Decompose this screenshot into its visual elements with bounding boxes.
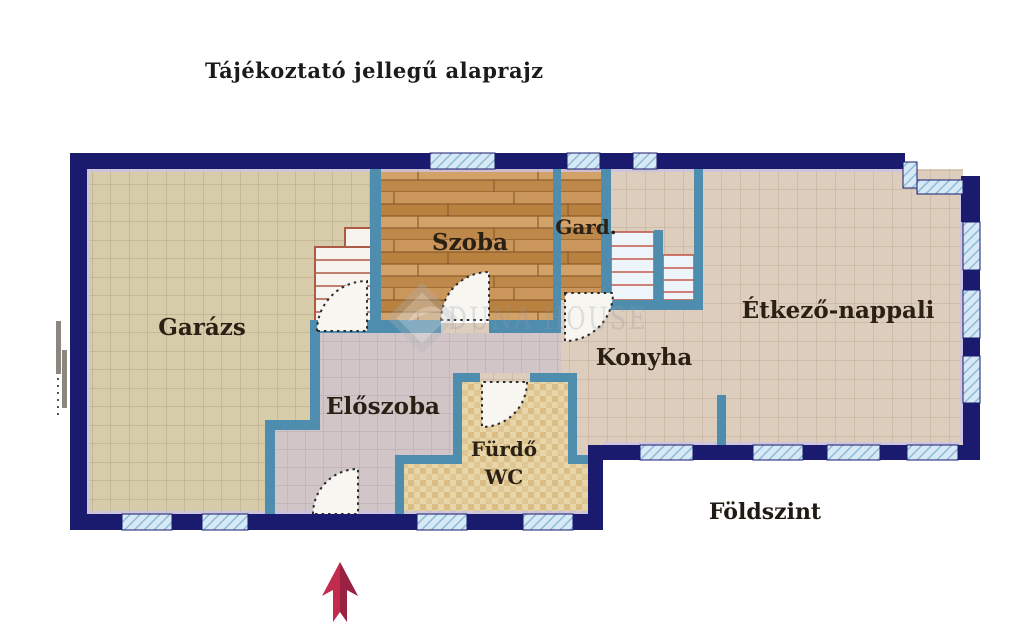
window-right-2 [963, 290, 980, 338]
wall-bottom-l1 [70, 514, 122, 530]
stair-landing [345, 228, 372, 248]
wall-top-3 [600, 153, 633, 169]
wall-wardrobe-right [601, 169, 611, 310]
window-notch-v [903, 162, 917, 188]
wall-hall-left [310, 333, 320, 423]
window-bottom-living-2 [753, 445, 803, 460]
wall-bath-step [395, 455, 453, 464]
window-top-room [430, 153, 495, 169]
wall-bath-step-right [568, 455, 588, 464]
wall-room-left [370, 169, 381, 333]
label-floor: Földszint [709, 499, 822, 525]
label-garage: Garázs [158, 314, 246, 341]
floors [87, 169, 963, 514]
window-bottom-garage-2 [202, 514, 248, 530]
floor-plan-canvas: Tájékoztató jellegű alaprajz [0, 0, 1024, 641]
floor-plan-page: Tájékoztató jellegű alaprajz [0, 0, 1024, 641]
label-room: Szoba [432, 229, 508, 256]
wall-top-1 [70, 153, 430, 169]
trim-left [87, 169, 90, 514]
wall-bottom-l3 [248, 514, 417, 530]
window-bottom-living-1 [640, 445, 693, 460]
wall-bath-left-upper [453, 382, 462, 464]
wall-garage-step-v [265, 430, 275, 514]
label-kitchen: Konyha [596, 344, 693, 371]
wall-kitchen-living [694, 169, 703, 310]
wall-top-2 [495, 153, 567, 169]
wall-bath-top-left [453, 373, 480, 382]
window-bottom-living-4 [907, 445, 958, 460]
window-top-wardrobe [567, 153, 600, 169]
page-title: Tájékoztató jellegű alaprajz [205, 58, 544, 83]
north-arrow [322, 562, 358, 622]
wall-bottom-r3 [803, 445, 827, 460]
wall-garage-step-h [265, 420, 320, 430]
wall-bottom-r4 [880, 445, 907, 460]
window-right-1 [963, 222, 980, 270]
gate-bar-1 [56, 321, 61, 374]
window-top-living [633, 153, 657, 169]
wall-right-3 [963, 403, 980, 460]
wall-bath-right [568, 373, 577, 455]
label-dining-living: Étkező-nappali [742, 297, 935, 324]
gate-bar-2 [62, 350, 67, 408]
wall-bottom-r1 [588, 445, 640, 460]
label-bathroom: Fürdő [471, 437, 537, 461]
window-bottom-garage-1 [122, 514, 172, 530]
window-notch-h [917, 180, 963, 194]
gate-marker [56, 321, 67, 416]
wall-right-1 [963, 270, 980, 290]
wall-kitchen-stub [717, 395, 726, 445]
wall-top-4 [657, 153, 905, 169]
stair-flight-left [611, 232, 654, 300]
label-hallway: Előszoba [326, 393, 440, 420]
wall-bottom-l2 [172, 514, 202, 530]
wall-bottom-l4 [467, 514, 523, 530]
north-arrow-shade [340, 562, 358, 622]
wall-stairs-middle [654, 230, 663, 300]
wall-right-2 [963, 338, 980, 356]
window-bottom-bath-1 [417, 514, 467, 530]
label-wardrobe: Gard. [555, 215, 617, 239]
window-bottom-bath-2 [523, 514, 573, 530]
window-bottom-living-3 [827, 445, 880, 460]
watermark-brand-text: DUNA HOUSE [448, 301, 648, 337]
stair-flight-right [663, 255, 694, 300]
wall-bath-left-lower [395, 464, 404, 514]
wall-left [70, 153, 87, 530]
label-wc: WC [484, 465, 523, 489]
wall-corner-ne [961, 176, 980, 222]
window-right-3 [963, 356, 980, 403]
wall-bottom-r2 [693, 445, 753, 460]
